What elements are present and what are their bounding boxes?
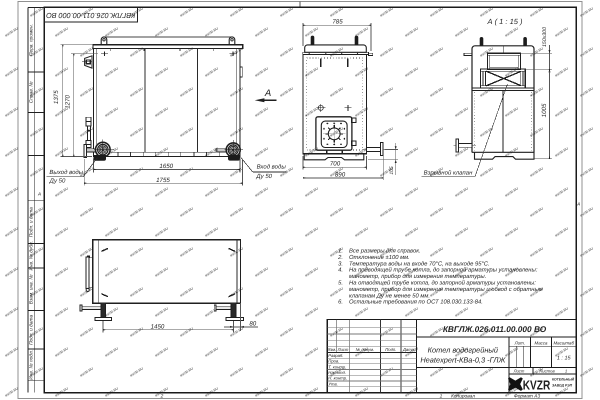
svg-text:Котел водогрейный: Котел водогрейный	[428, 345, 498, 354]
svg-text:Пров.: Пров.	[328, 359, 339, 364]
svg-text:ЗАВОД РЭП: ЗАВОД РЭП	[552, 384, 573, 388]
svg-text:1: 1	[440, 394, 443, 400]
svg-text:клапанам Ду не менее 50 мм.: клапанам Ду не менее 50 мм.	[349, 292, 430, 299]
svg-text:Лит.: Лит.	[514, 340, 525, 345]
svg-text:Утв.: Утв.	[328, 381, 338, 386]
svg-text:Перв. примен.: Перв. примен.	[28, 24, 34, 56]
svg-text:Формат А3: Формат А3	[514, 394, 541, 400]
svg-text:КОТЕЛЬНЫЙ: КОТЕЛЬНЫЙ	[552, 377, 575, 382]
svg-text:Инв. № дубл.: Инв. № дубл.	[28, 241, 34, 271]
svg-text:манометр, прибор для измерения: манометр, прибор для измерения температу…	[349, 286, 543, 293]
svg-text:6.: 6.	[338, 299, 343, 306]
svg-text:Вход воды: Вход воды	[257, 164, 287, 171]
svg-text:№ докум.: № докум.	[356, 347, 374, 352]
svg-text:Лист: Лист	[513, 369, 525, 374]
svg-text:КВГЛЖ.026.011.00.000 ВО: КВГЛЖ.026.011.00.000 ВО	[46, 11, 136, 20]
svg-text:Нач.отд.: Нач.отд.	[328, 370, 346, 375]
svg-text:Ду 50: Ду 50	[255, 173, 272, 180]
svg-text:Температура воды на входе 70°С: Температура воды на входе 70°С, на выход…	[349, 260, 490, 267]
svg-text:890: 890	[335, 171, 346, 178]
svg-text:Взрывной клапан: Взрывной клапан	[424, 169, 473, 176]
svg-text:А: А	[576, 202, 580, 207]
svg-text:1650: 1650	[159, 163, 173, 170]
svg-text:1270: 1270	[64, 94, 71, 108]
svg-text:80: 80	[249, 321, 256, 328]
svg-text:1 : 15: 1 : 15	[557, 355, 572, 361]
svg-text:1: 1	[565, 369, 567, 374]
svg-text:Т. контр.: Т. контр.	[328, 364, 346, 369]
svg-text:3.: 3.	[338, 260, 343, 267]
svg-text:На отводящей трубе котла, до з: На отводящей трубе котла, до запорной ар…	[349, 280, 536, 287]
svg-text:Копировал: Копировал	[451, 394, 475, 400]
svg-text:Подп. и дата: Подп. и дата	[28, 315, 34, 345]
svg-text:Ду 50: Ду 50	[49, 178, 66, 185]
svg-text:КВГЛЖ.026.011.00.000 ВО: КВГЛЖ.026.011.00.000 ВО	[443, 324, 547, 334]
svg-text:На подводящей трубе котла, до: На подводящей трубе котла, до запорной а…	[349, 267, 538, 274]
svg-text:5.: 5.	[338, 280, 343, 287]
svg-text:1450: 1450	[151, 323, 165, 330]
svg-text:KVZR: KVZR	[523, 378, 551, 393]
svg-text:Масса: Масса	[535, 340, 549, 345]
svg-text:Подп. и дата: Подп. и дата	[28, 207, 34, 237]
svg-text:Н. контр.: Н. контр.	[328, 376, 347, 381]
svg-text:4.: 4.	[338, 267, 343, 274]
svg-text:Дата: Дата	[402, 347, 415, 352]
svg-text:Выход воды: Выход воды	[49, 169, 83, 176]
svg-text:2.: 2.	[337, 254, 343, 261]
svg-text:Изм.: Изм.	[327, 347, 336, 352]
svg-text:Подп.: Подп.	[385, 347, 396, 352]
svg-text:манометр, прибор для измерения: манометр, прибор для измерения температу…	[349, 273, 486, 280]
svg-text:Все размеры для справок.: Все размеры для справок.	[349, 248, 421, 255]
svg-text:Лист: Лист	[337, 347, 349, 352]
svg-text:Разраб.: Разраб.	[328, 353, 343, 358]
svg-text:1005: 1005	[541, 103, 548, 117]
svg-text:Остальные требования по ОСТ 10: Остальные требования по ОСТ 108.030.133-…	[349, 299, 483, 306]
svg-text:150х300: 150х300	[542, 27, 548, 47]
svg-text:Heatexpert-КВа-0,3 -ГЛЖ: Heatexpert-КВа-0,3 -ГЛЖ	[420, 355, 506, 364]
svg-text:2: 2	[160, 394, 164, 400]
svg-text:А ( 1 : 15 ): А ( 1 : 15 )	[486, 17, 523, 26]
svg-text:105: 105	[389, 166, 395, 175]
svg-text:Масштаб: Масштаб	[553, 340, 574, 345]
svg-text:700: 700	[330, 161, 341, 168]
svg-text:1375: 1375	[53, 90, 60, 104]
svg-text:Листов: Листов	[538, 369, 555, 374]
svg-text:А: А	[37, 192, 41, 197]
svg-text:Отклонение ±100 мм.: Отклонение ±100 мм.	[349, 254, 410, 261]
svg-text:785: 785	[332, 19, 343, 26]
svg-text:А: А	[264, 88, 271, 99]
svg-text:Инв. № подл.: Инв. № подл.	[28, 350, 34, 380]
svg-text:1.: 1.	[338, 248, 343, 255]
svg-text:Справ. №: Справ. №	[28, 81, 34, 104]
svg-text:Взам. инв. №: Взам. инв. №	[28, 274, 34, 304]
svg-text:1755: 1755	[156, 177, 170, 184]
